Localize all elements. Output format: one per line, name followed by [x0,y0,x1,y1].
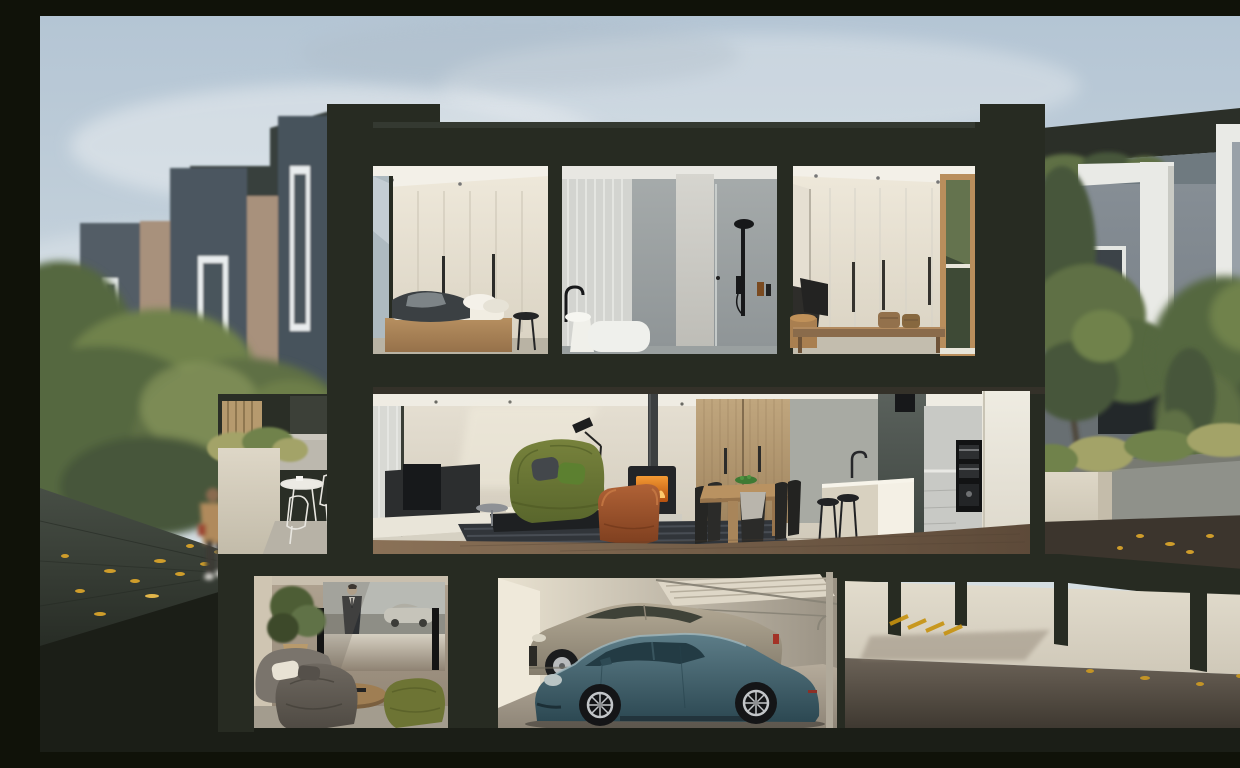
parapet [373,122,1045,166]
shared-driveway [845,574,1240,728]
parapet-cap-left [358,104,440,122]
stone-partition [676,174,714,354]
wardrobe-handle [852,262,855,312]
cut-column-right-lower [1030,394,1045,579]
wardrobe-handle [492,254,495,300]
wardrobe-handle [882,260,885,310]
joinery-tower [982,391,1030,548]
speaker-right [432,608,439,670]
front-wheel [579,684,621,726]
parapet-cap-right [980,104,1045,122]
fruit-bowl [735,476,757,484]
black-pendant-box [895,394,915,412]
dining-setting [695,475,801,546]
green-ottoman [384,678,445,728]
mullion-1 [548,166,562,356]
architectural-render: Photorealistic dusk cross-section render… [40,16,1240,752]
left-terrace [207,394,338,559]
rear-wheel [735,682,777,724]
green-sofa [509,439,604,523]
cut-column-left [327,104,373,576]
garage [498,572,845,732]
door-rail [826,572,833,728]
projection-screen [323,582,445,671]
basement-divider-wall [448,571,498,731]
second-bedroom [790,166,975,356]
headlight [544,674,562,686]
platform-bed [385,291,512,352]
main-bedroom [373,166,548,354]
cut-column-right-upper [975,122,1045,394]
integrated-appliances [956,440,982,512]
bottle [757,282,764,296]
terrace-hood [290,396,332,436]
window-garden [940,174,975,356]
leather-armchair [598,484,660,545]
living-level [373,391,1030,556]
bathroom [562,166,777,354]
tv-screen [403,464,441,510]
wardrobe-handle [928,257,931,305]
